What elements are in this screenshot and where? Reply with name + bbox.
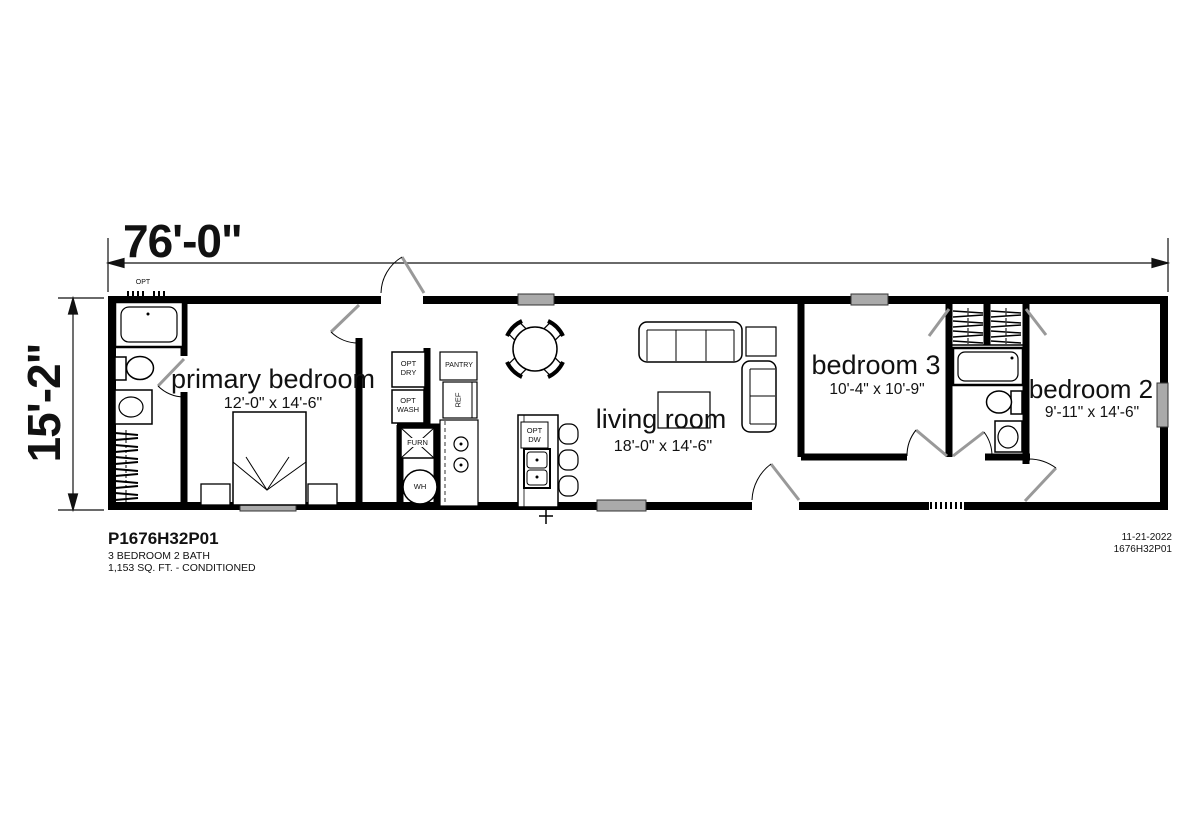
toilet-1-bowl bbox=[127, 357, 154, 380]
overall-width-dimension: 76'-0" bbox=[123, 214, 242, 268]
room-size-primary-bedroom: 12'-0" x 14'-6" bbox=[168, 395, 378, 413]
room-size-bedroom-2: 9'-11" x 14'-6" bbox=[1000, 404, 1184, 422]
floorplan-page: 76'-0" 15'-2" primary bedroom 12'-0" x 1… bbox=[0, 0, 1200, 818]
room-size-bedroom-3: 10'-4" x 10'-9" bbox=[771, 381, 983, 399]
drawing-number: 1676H32P01 bbox=[1050, 544, 1172, 557]
sink-1-basin bbox=[119, 397, 143, 417]
bed bbox=[233, 412, 306, 505]
sink-2-basin bbox=[998, 426, 1018, 448]
pantry-label: PANTRY bbox=[439, 362, 479, 370]
water-heater-label: WH bbox=[404, 483, 436, 492]
opt-dishwasher-label: OPT DW bbox=[519, 427, 550, 444]
nightstand-right bbox=[308, 484, 337, 505]
plan-area: 1,153 SQ. FT. - CONDITIONED bbox=[108, 562, 256, 574]
furnace-label: FURN bbox=[401, 439, 434, 448]
opt-washer-label: OPT WASH bbox=[391, 397, 425, 414]
room-size-living-room: 18'-0" x 14'-6" bbox=[556, 438, 770, 456]
plan-description: 3 BEDROOM 2 BATH bbox=[108, 550, 210, 562]
sofa bbox=[639, 322, 742, 362]
overall-height-dimension: 15'-2" bbox=[17, 344, 71, 463]
room-label-primary-bedroom: primary bedroom bbox=[168, 364, 378, 395]
dining-set bbox=[507, 321, 563, 377]
drawing-date: 11-21-2022 bbox=[1050, 532, 1172, 545]
nightstand-left bbox=[201, 484, 230, 505]
refrigerator-label: REF bbox=[455, 393, 464, 408]
room-label-living-room: living room bbox=[556, 404, 766, 435]
marker-cross bbox=[539, 509, 553, 524]
room-label-bedroom-3: bedroom 3 bbox=[771, 350, 981, 381]
opt-window-label: OPT bbox=[126, 279, 160, 287]
opt-dryer-label: OPT DRY bbox=[392, 360, 425, 377]
dining-table bbox=[513, 327, 557, 371]
plan-number: P1676H32P01 bbox=[108, 529, 219, 549]
toilet-1-tank bbox=[115, 357, 126, 380]
room-label-bedroom-2: bedroom 2 bbox=[1000, 374, 1182, 405]
stool bbox=[559, 476, 578, 496]
